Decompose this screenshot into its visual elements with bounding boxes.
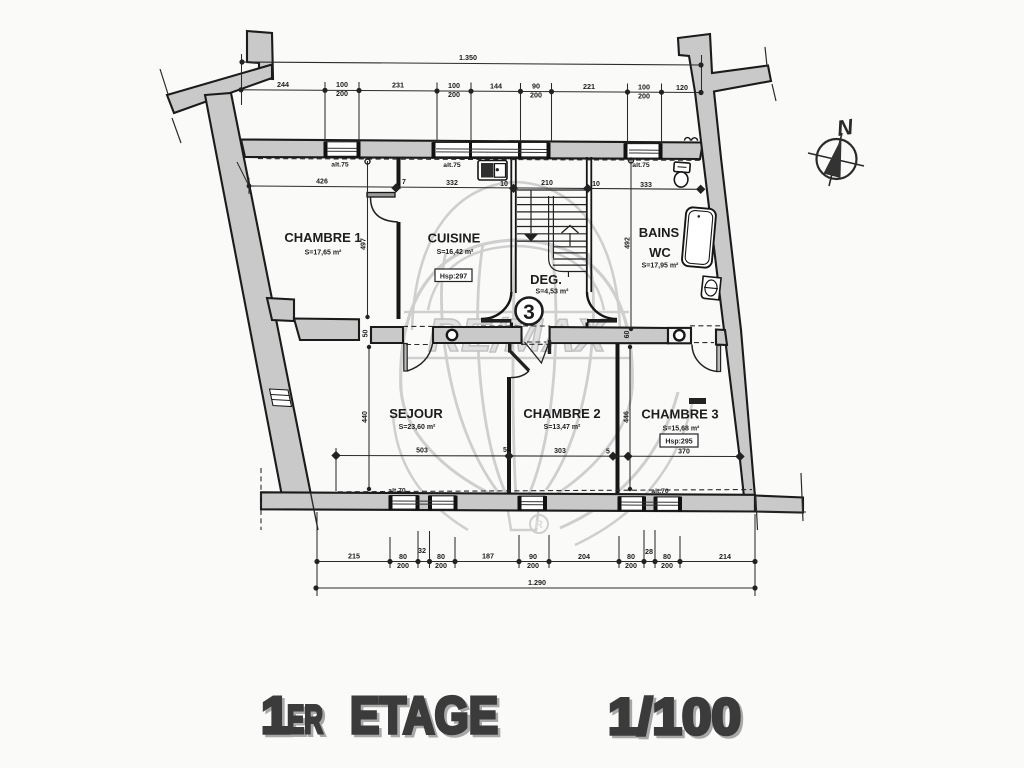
svg-text:S=15,68 m²: S=15,68 m² [663, 426, 700, 433]
svg-text:10: 10 [500, 181, 508, 188]
svg-text:3: 3 [523, 301, 535, 324]
svg-text:Hsp:295: Hsp:295 [665, 439, 692, 446]
svg-text:100: 100 [336, 80, 348, 89]
svg-text:S=16,42 m²: S=16,42 m² [437, 249, 474, 256]
svg-text:90: 90 [532, 82, 540, 91]
svg-text:1: 1 [261, 687, 290, 745]
svg-text:446: 446 [624, 411, 631, 423]
svg-text:200: 200 [397, 561, 409, 570]
svg-text:SEJOUR: SEJOUR [389, 406, 443, 421]
svg-text:221: 221 [583, 82, 595, 91]
svg-text:100: 100 [448, 81, 460, 90]
svg-text:1.350: 1.350 [459, 53, 477, 62]
svg-text:200: 200 [530, 91, 542, 100]
svg-text:S=23,60 m²: S=23,60 m² [399, 424, 436, 431]
svg-text:S=17,65 m²: S=17,65 m² [305, 250, 342, 257]
svg-text:CHAMBRE 3: CHAMBRE 3 [641, 407, 718, 422]
svg-text:BAINS: BAINS [639, 225, 680, 240]
svg-text:244: 244 [277, 80, 289, 89]
svg-text:204: 204 [578, 552, 590, 561]
svg-text:50: 50 [363, 330, 370, 338]
svg-text:5: 5 [606, 448, 610, 455]
svg-text:1/100: 1/100 [608, 688, 741, 745]
svg-text:426: 426 [316, 179, 328, 186]
svg-text:alt.70: alt.70 [651, 488, 669, 495]
svg-text:90: 90 [529, 552, 537, 561]
svg-text:303: 303 [554, 448, 566, 455]
svg-text:32: 32 [418, 546, 426, 555]
svg-text:80: 80 [663, 552, 671, 561]
svg-text:187: 187 [482, 552, 494, 561]
svg-text:alt.75: alt.75 [632, 162, 650, 169]
svg-text:S=17,95 m²: S=17,95 m² [642, 263, 679, 270]
svg-text:200: 200 [527, 561, 539, 570]
svg-text:ER: ER [287, 698, 323, 742]
svg-text:200: 200 [448, 90, 460, 99]
svg-text:S=13,47 m²: S=13,47 m² [544, 424, 581, 431]
svg-text:80: 80 [627, 552, 635, 561]
svg-text:Hsp:297: Hsp:297 [440, 274, 467, 281]
svg-text:80: 80 [399, 552, 407, 561]
svg-text:10: 10 [592, 181, 600, 188]
svg-text:231: 231 [392, 81, 404, 90]
svg-text:WC: WC [649, 245, 671, 260]
svg-text:503: 503 [416, 448, 428, 455]
svg-text:215: 215 [348, 552, 360, 561]
svg-text:alt.75: alt.75 [443, 162, 461, 169]
svg-text:alt.75: alt.75 [331, 162, 349, 169]
svg-text:200: 200 [625, 561, 637, 570]
svg-text:370: 370 [678, 449, 690, 456]
svg-text:200: 200 [638, 92, 650, 101]
svg-text:28: 28 [645, 547, 653, 556]
svg-text:80: 80 [437, 552, 445, 561]
svg-text:S=4,53 m²: S=4,53 m² [536, 289, 570, 296]
svg-text:200: 200 [336, 89, 348, 98]
svg-text:5: 5 [503, 447, 507, 454]
svg-text:100: 100 [638, 83, 650, 92]
svg-text:333: 333 [640, 182, 652, 189]
svg-text:R: R [535, 519, 543, 531]
svg-text:ETAGE: ETAGE [350, 687, 498, 745]
svg-text:CHAMBRE 1: CHAMBRE 1 [284, 230, 361, 245]
svg-text:200: 200 [661, 561, 673, 570]
svg-text:DEG.: DEG. [530, 272, 562, 287]
svg-text:492: 492 [625, 237, 632, 249]
svg-text:144: 144 [490, 82, 502, 91]
svg-text:7: 7 [402, 179, 406, 186]
svg-text:210: 210 [541, 180, 553, 187]
svg-text:214: 214 [719, 552, 731, 561]
svg-text:CHAMBRE 2: CHAMBRE 2 [523, 406, 600, 421]
svg-text:120: 120 [676, 83, 688, 92]
svg-text:60: 60 [624, 331, 631, 339]
svg-text:1.290: 1.290 [528, 578, 546, 587]
svg-text:T: T [566, 270, 571, 279]
svg-text:440: 440 [362, 411, 369, 423]
svg-text:alt.70: alt.70 [388, 488, 406, 495]
svg-text:200: 200 [435, 561, 447, 570]
svg-text:CUISINE: CUISINE [428, 231, 481, 246]
svg-text:332: 332 [446, 180, 458, 187]
